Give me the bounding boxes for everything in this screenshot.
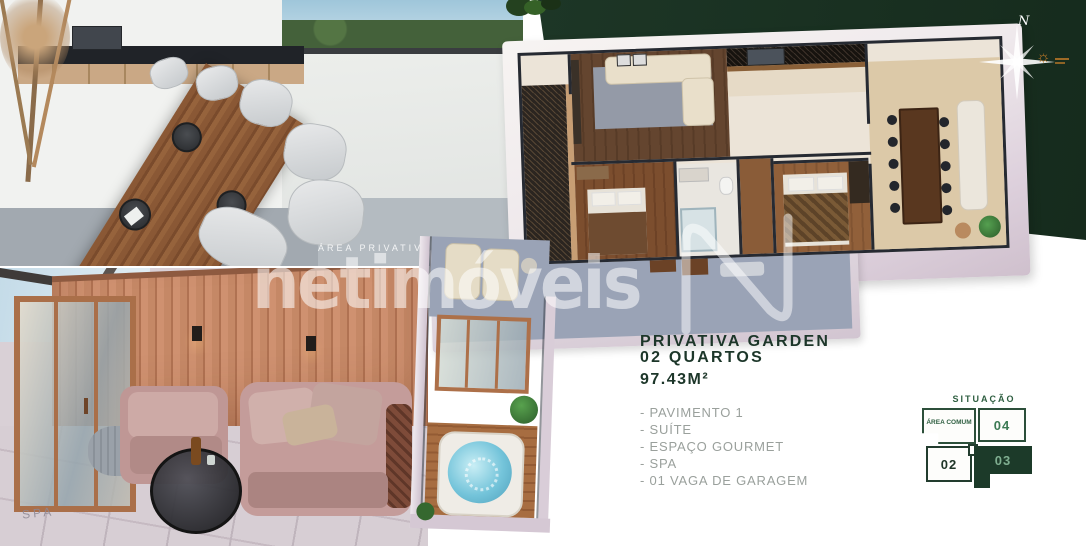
bottle: [191, 437, 201, 465]
rattan-armrest: [386, 404, 412, 508]
unit-03-tab: [974, 474, 990, 488]
listing-title-line1: PRIVATIVA GARDEN: [640, 334, 830, 350]
coffee-table: [150, 448, 242, 534]
bbq-grill: [746, 48, 785, 66]
feature-item: - SUÍTE: [640, 421, 830, 438]
feature-item: - ESPAÇO GOURMET: [640, 438, 830, 455]
sauna-cabin: [14, 296, 136, 512]
wall-frame: [633, 53, 647, 65]
water-swirl: [464, 457, 499, 492]
glass: [207, 455, 215, 465]
listing-collage: ÁREA PRIVATIVA: [0, 0, 1086, 546]
unit-04-number: 04: [994, 418, 1010, 433]
wall-frame: [617, 54, 631, 66]
unit-04-cell: 04: [978, 408, 1026, 442]
bathroom-sink: [679, 167, 709, 182]
listing-area: 97.43M²: [640, 372, 830, 388]
kitchen-counter-left: [522, 84, 578, 262]
hot-tub: [436, 431, 525, 518]
sunset-label-mark: [1055, 62, 1065, 64]
suite-wardrobe: [848, 161, 869, 204]
sauna-mullion: [495, 321, 500, 389]
sauna-mullion: [94, 302, 98, 506]
seat-front: [248, 472, 388, 508]
garden-sauna: [435, 315, 532, 394]
unit-02-cell: 02: [926, 446, 972, 482]
pillow: [617, 191, 641, 206]
unit-03-cell-highlighted: 03: [974, 446, 1032, 474]
garden-plant: [510, 395, 539, 424]
hot-tub-water: [447, 440, 513, 504]
gourmet-table: [899, 107, 943, 224]
pillow: [817, 176, 843, 191]
common-area-cell: ÁREA COMUM: [922, 408, 976, 444]
bedroom1-desk: [576, 166, 608, 180]
sauna-mullion: [465, 320, 470, 388]
place-setting: [166, 117, 207, 158]
pampas-plant: [0, 0, 84, 192]
loveseat-sofa: [240, 382, 412, 516]
situacao-title: SITUAÇÃO: [918, 394, 1050, 404]
toilet: [719, 177, 734, 195]
listing-title-line2: 02 QUARTOS: [640, 350, 830, 366]
unit-02-number: 02: [941, 457, 957, 472]
pampas-plume: [0, 0, 70, 82]
feature-item: - PAVIMENTO 1: [640, 404, 830, 421]
wall-sconce: [306, 336, 316, 351]
feature-list: - PAVIMENTO 1 - SUÍTE - ESPAÇO GOURMET -…: [640, 404, 830, 489]
pillow: [591, 192, 615, 207]
sauna-door-handle: [84, 398, 88, 414]
situacao-diagram: ÁREA COMUM 04 02 03: [918, 406, 1050, 492]
feature-item: - SPA: [640, 455, 830, 472]
feature-item: - 01 VAGA DE GARAGEM: [640, 472, 830, 489]
compass-north-label: N: [1018, 14, 1029, 29]
pillow: [788, 177, 814, 192]
sun-icon: ☼: [1036, 50, 1051, 66]
listing-details: PRIVATIVA GARDEN 02 QUARTOS 97.43M² - PA…: [640, 334, 830, 489]
sunset-label-mark: [1055, 58, 1069, 60]
wall-sconce: [192, 326, 202, 341]
unit-03-number: 03: [995, 453, 1011, 468]
netimoveis-watermark: netimóveis: [252, 241, 640, 325]
sofa-chaise: [681, 77, 715, 126]
netimoveis-logo-mark: [666, 206, 816, 338]
gourmet-bench: [956, 100, 988, 211]
common-area-label: ÁREA COMUM: [926, 419, 971, 426]
back-cushion: [128, 392, 218, 438]
sauna-mullion: [54, 302, 58, 506]
